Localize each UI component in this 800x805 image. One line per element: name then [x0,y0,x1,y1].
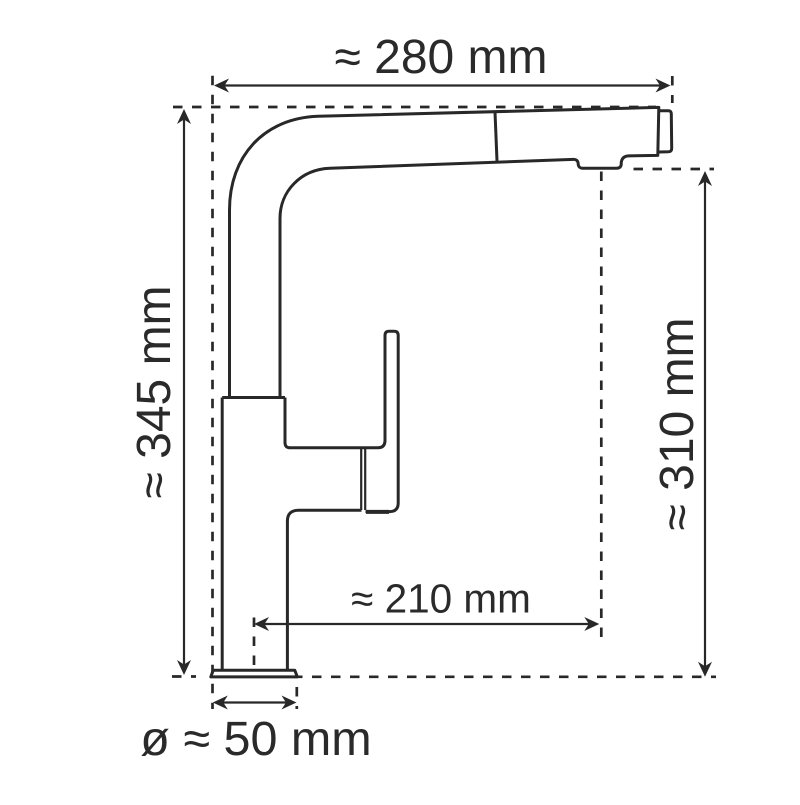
svg-text:≈ 280 mm: ≈ 280 mm [334,31,547,84]
svg-text:≈ 310 mm: ≈ 310 mm [651,317,704,530]
svg-text:ø ≈ 50 mm: ø ≈ 50 mm [140,712,371,766]
svg-text:≈ 210 mm: ≈ 210 mm [351,576,531,622]
svg-text:≈ 345 mm: ≈ 345 mm [128,285,181,498]
